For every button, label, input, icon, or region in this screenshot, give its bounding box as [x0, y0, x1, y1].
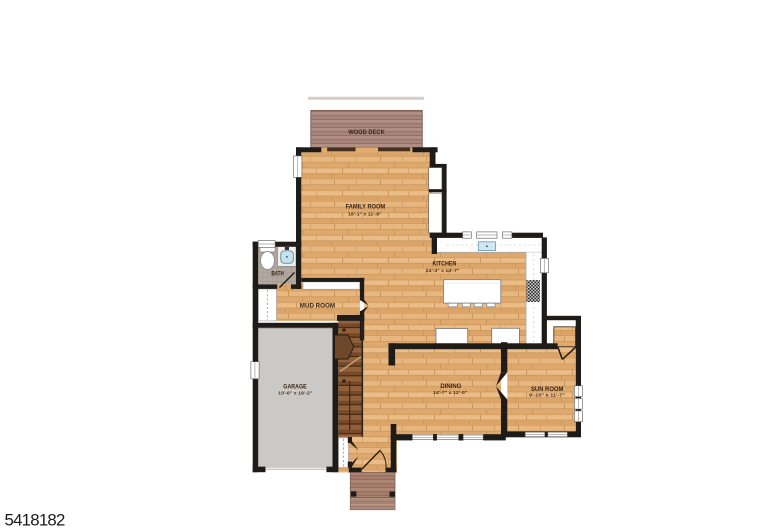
svg-text:KITCHEN: KITCHEN: [433, 262, 457, 268]
svg-text:FAMILY ROOM: FAMILY ROOM: [346, 204, 386, 210]
svg-text:MUD ROOM: MUD ROOM: [300, 303, 335, 309]
svg-text:WOOD DECK: WOOD DECK: [348, 130, 385, 136]
svg-text:18'-1" x 11'-8": 18'-1" x 11'-8": [348, 212, 382, 217]
svg-text:14'-7" x 12'-0": 14'-7" x 12'-0": [433, 390, 467, 395]
svg-text:BATH: BATH: [271, 272, 284, 278]
svg-text:5418182: 5418182: [5, 511, 65, 530]
svg-text:24'-3" x 14'-7": 24'-3" x 14'-7": [426, 268, 460, 273]
svg-text:9'-10" x 11'-7": 9'-10" x 11'-7": [529, 392, 565, 397]
svg-text:DINING: DINING: [440, 384, 461, 390]
svg-text:10'-6" x 19'-2": 10'-6" x 19'-2": [278, 390, 312, 395]
